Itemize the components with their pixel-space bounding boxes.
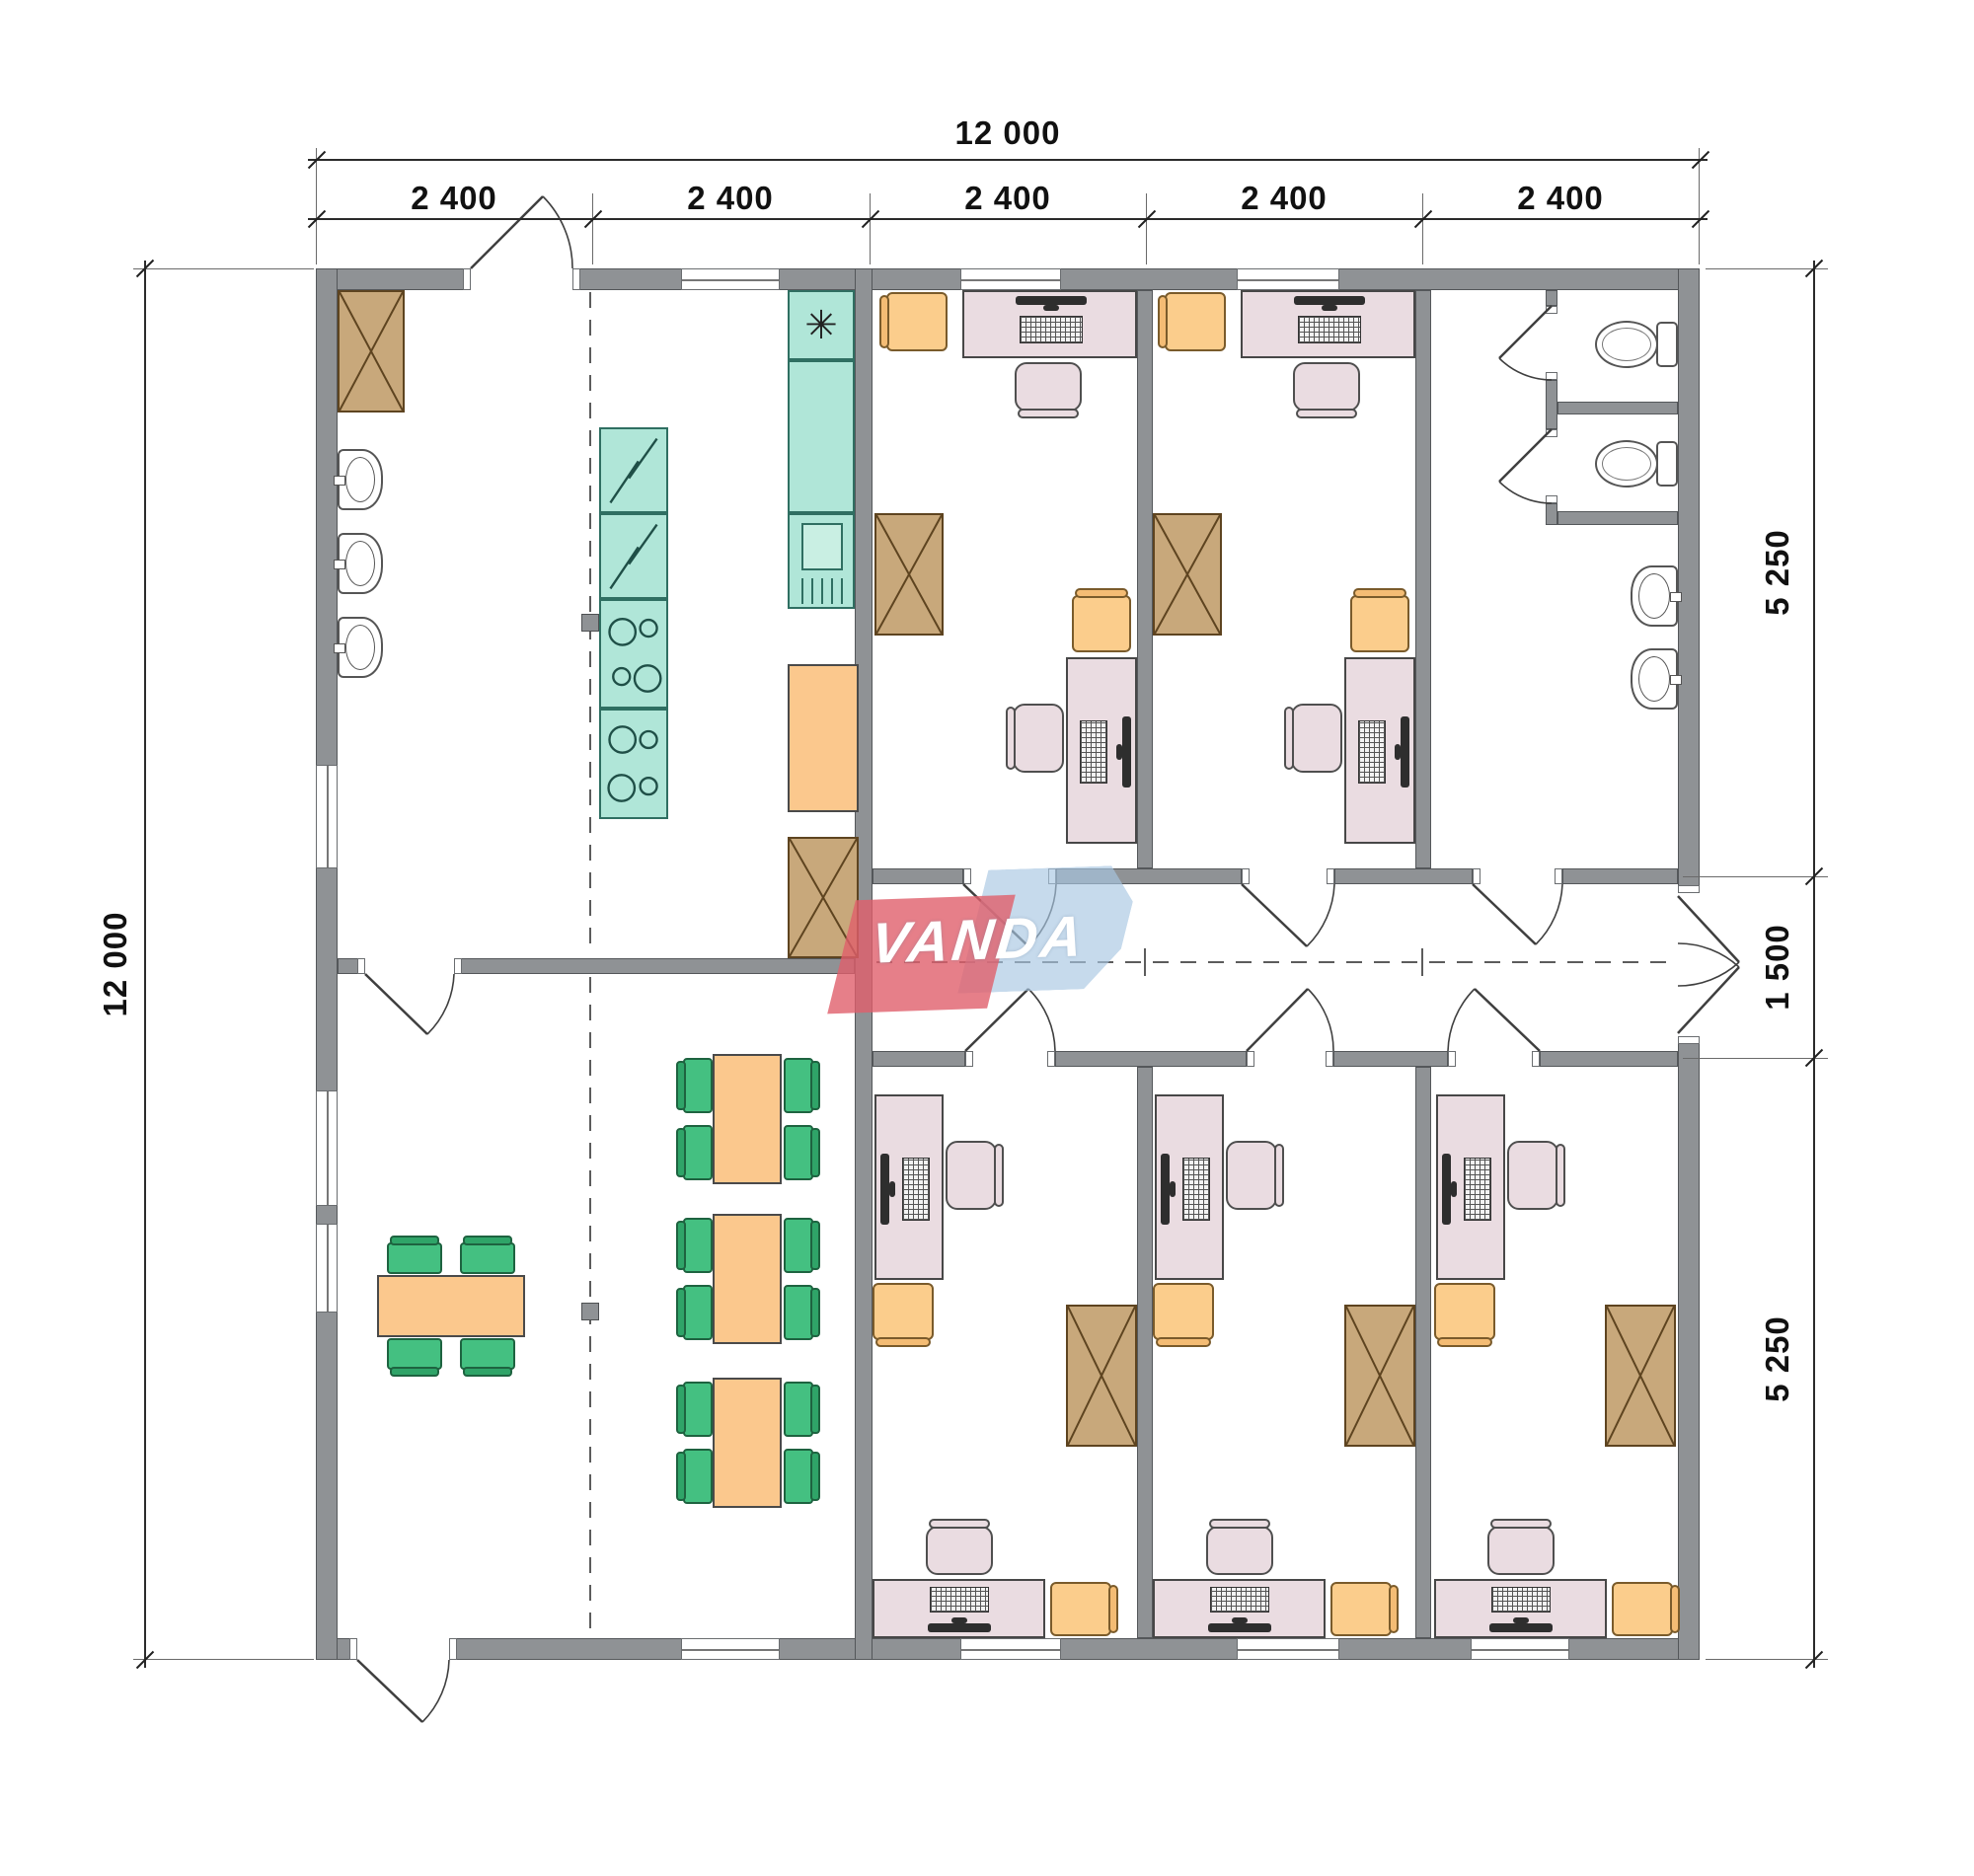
wall-wc-stall xyxy=(1546,290,1557,306)
office-door xyxy=(1242,884,1334,949)
extension-line xyxy=(1706,1659,1828,1660)
stove-icon xyxy=(599,709,668,819)
monitor-icon xyxy=(1489,1623,1553,1632)
dining-chair xyxy=(683,1218,713,1273)
extension-line xyxy=(316,148,317,264)
window xyxy=(316,765,338,868)
office-cabinet xyxy=(1153,513,1222,636)
freezer-segment: ✳ xyxy=(788,290,855,360)
office-chair xyxy=(1291,704,1342,773)
keyboard-icon xyxy=(1080,720,1107,784)
wall-divider xyxy=(454,958,855,974)
office-chair xyxy=(926,1526,993,1575)
washroom-door xyxy=(1473,884,1562,947)
visitor-chair xyxy=(1434,1283,1495,1340)
dining-chair xyxy=(784,1058,813,1113)
dining-chair xyxy=(784,1382,813,1437)
wall-wc-stall xyxy=(1546,503,1557,525)
wall-right xyxy=(1678,1036,1700,1660)
dining-table xyxy=(377,1275,525,1337)
office-chair xyxy=(1013,704,1064,773)
office-chair xyxy=(1226,1141,1277,1210)
door-jamb xyxy=(1326,1051,1333,1067)
dining-chair xyxy=(683,1449,713,1504)
visitor-chair xyxy=(1153,1283,1214,1340)
monitor-stand-icon xyxy=(1451,1181,1457,1197)
monitor-stand-icon xyxy=(1170,1181,1176,1197)
keyboard-icon xyxy=(902,1158,930,1221)
dimension-label: 2 400 xyxy=(939,180,1077,215)
door-jamb xyxy=(1047,1051,1055,1067)
kitchen-sink-basin xyxy=(801,523,843,570)
extension-line xyxy=(1422,193,1423,264)
kitchen-sink-segment xyxy=(788,513,855,609)
column xyxy=(581,1303,599,1320)
door-jamb xyxy=(357,958,365,974)
wall-corridor-top xyxy=(1334,868,1473,884)
kitchen-sink-drainer xyxy=(801,578,845,604)
dining-table xyxy=(713,1378,782,1508)
office-desk xyxy=(1434,1579,1607,1638)
door-jamb xyxy=(1247,1051,1254,1067)
fridge-icon xyxy=(599,427,668,513)
extension-line xyxy=(1683,1058,1828,1059)
office-chair xyxy=(1206,1526,1273,1575)
wall-corridor-top xyxy=(1562,868,1678,884)
wall-office-bottom xyxy=(1415,1067,1431,1638)
door-jamb xyxy=(1448,1051,1456,1067)
office-desk xyxy=(1066,657,1137,844)
dimension-label: 2 400 xyxy=(1215,180,1353,215)
wall-wc-stall xyxy=(1546,380,1557,429)
window xyxy=(681,1638,780,1660)
exit-door xyxy=(357,1660,449,1725)
wall-wc-divider xyxy=(1557,402,1678,414)
centerline-tick xyxy=(1421,948,1423,976)
office-desk xyxy=(1436,1094,1505,1280)
logo-text: VANDA xyxy=(819,861,1136,1017)
wall-sink xyxy=(338,449,383,510)
toilet-tank xyxy=(1656,441,1678,487)
monitor-icon xyxy=(1016,296,1087,305)
monitor-stand-icon xyxy=(889,1181,895,1197)
window xyxy=(1237,1638,1339,1660)
kitchen-unit-left xyxy=(599,427,668,819)
dining-chair xyxy=(683,1058,713,1113)
office-desk xyxy=(962,290,1137,358)
floor-plan-sheet: ✳ xyxy=(0,0,1974,1876)
dining-chair xyxy=(387,1242,442,1274)
monitor-icon xyxy=(1442,1154,1451,1225)
monitor-stand-icon xyxy=(951,1617,967,1623)
window xyxy=(960,1638,1061,1660)
corridor-double-door xyxy=(1678,893,1745,1036)
wall-right xyxy=(1678,268,1700,893)
door-jamb xyxy=(349,1638,357,1660)
office-cabinet xyxy=(1605,1305,1676,1447)
keyboard-icon xyxy=(1298,316,1361,343)
keyboard-icon xyxy=(1182,1158,1210,1221)
visitor-chair xyxy=(1050,1582,1111,1636)
dining-chair xyxy=(683,1125,713,1180)
wall-sink xyxy=(1631,648,1678,710)
dining-table xyxy=(713,1214,782,1344)
dimension-label: 2 400 xyxy=(1491,180,1630,215)
visitor-chair xyxy=(1612,1582,1673,1636)
toilet-bowl xyxy=(1595,440,1658,488)
visitor-chair xyxy=(1165,292,1226,351)
office-cabinet xyxy=(1344,1305,1415,1447)
door-jamb xyxy=(1678,885,1700,893)
dining-chair xyxy=(784,1449,813,1504)
dimension-label: 5 250 xyxy=(1759,1280,1798,1438)
dimension-label: 12 000 xyxy=(97,875,136,1053)
window xyxy=(960,268,1061,290)
toilet-bowl xyxy=(1595,321,1658,368)
toilet-tank xyxy=(1656,322,1678,367)
extension-line xyxy=(1699,148,1700,264)
kitchen-counter-table xyxy=(788,664,859,812)
window xyxy=(316,1224,338,1313)
wall-corridor-bottom xyxy=(1055,1051,1247,1067)
window xyxy=(1237,268,1339,290)
monitor-icon xyxy=(1294,296,1365,305)
dining-chair xyxy=(784,1218,813,1273)
door-jamb xyxy=(463,268,471,290)
office-chair xyxy=(1293,362,1360,412)
dimension-line xyxy=(1813,261,1815,1668)
dining-chair xyxy=(460,1338,515,1370)
dining-chair xyxy=(784,1285,813,1340)
door-jamb xyxy=(1327,868,1334,884)
wall-sink xyxy=(338,617,383,678)
visitor-chair xyxy=(1330,1582,1392,1636)
wc-stall-door xyxy=(1485,306,1552,380)
office-door xyxy=(1448,986,1540,1051)
keyboard-icon xyxy=(1020,316,1083,343)
wall-sink xyxy=(338,533,383,594)
fridge-icon xyxy=(599,513,668,599)
stove-icon xyxy=(599,599,668,709)
monitor-icon xyxy=(928,1623,991,1632)
wall-sink xyxy=(1631,565,1678,627)
office-desk xyxy=(873,1579,1045,1638)
office-chair xyxy=(946,1141,997,1210)
dimension-line-segments xyxy=(308,218,1708,220)
monitor-stand-icon xyxy=(1232,1617,1248,1623)
door-jamb xyxy=(1532,1051,1540,1067)
door-jamb xyxy=(454,958,462,974)
dimension-label: 12 000 xyxy=(919,114,1097,154)
dining-table xyxy=(713,1054,782,1184)
wall-office-bottom xyxy=(1137,1067,1153,1638)
monitor-icon xyxy=(1122,716,1131,788)
door-jamb xyxy=(1242,868,1250,884)
dining-chair xyxy=(784,1125,813,1180)
keyboard-icon xyxy=(1464,1158,1491,1221)
office-desk xyxy=(1155,1094,1224,1280)
wall-wc-bottom xyxy=(1557,511,1678,525)
door-jamb xyxy=(572,268,580,290)
window xyxy=(1471,1638,1569,1660)
office-cabinet xyxy=(1066,1305,1137,1447)
wall-top xyxy=(316,268,471,290)
door-jamb xyxy=(1678,1036,1700,1044)
monitor-stand-icon xyxy=(1116,744,1122,760)
office-chair xyxy=(1487,1526,1555,1575)
extension-line xyxy=(1683,876,1828,877)
keyboard-icon xyxy=(1210,1587,1269,1613)
office-desk xyxy=(874,1094,944,1280)
extension-line xyxy=(133,1659,314,1660)
visitor-chair xyxy=(1072,595,1131,652)
dimension-label: 2 400 xyxy=(385,180,523,215)
dining-chair xyxy=(683,1382,713,1437)
column xyxy=(581,614,599,632)
dining-chair xyxy=(460,1242,515,1274)
office-chair xyxy=(1015,362,1082,412)
wardrobe-cabinet xyxy=(338,290,405,413)
door-jamb xyxy=(1473,868,1480,884)
freezer-star-icon: ✳ xyxy=(790,306,853,345)
monitor-icon xyxy=(1208,1623,1271,1632)
keyboard-icon xyxy=(1491,1587,1551,1613)
wall-office-top xyxy=(1137,290,1153,868)
monitor-icon xyxy=(1401,716,1409,788)
extension-line xyxy=(133,268,314,269)
office-desk xyxy=(1344,657,1415,844)
counter-segment xyxy=(788,360,855,513)
monitor-stand-icon xyxy=(1513,1617,1529,1623)
dining-door xyxy=(365,974,454,1037)
office-desk xyxy=(1241,290,1415,358)
vanda-watermark-logo: VANDA xyxy=(825,862,1132,1018)
visitor-chair xyxy=(886,292,948,351)
wall-corridor-bottom xyxy=(873,1051,965,1067)
dimension-label: 2 400 xyxy=(661,180,799,215)
monitor-icon xyxy=(1161,1154,1170,1225)
dining-chair xyxy=(387,1338,442,1370)
wall-corridor-bottom xyxy=(1540,1051,1678,1067)
window xyxy=(681,268,780,290)
extension-line xyxy=(592,193,593,264)
wall-office-top xyxy=(1415,290,1431,868)
extension-line xyxy=(1706,268,1828,269)
wc-stall-door xyxy=(1485,429,1552,503)
dining-chair xyxy=(683,1285,713,1340)
extension-line xyxy=(1146,193,1147,264)
visitor-chair xyxy=(1350,595,1409,652)
visitor-chair xyxy=(873,1283,934,1340)
monitor-stand-icon xyxy=(1043,305,1059,311)
dimension-label: 5 250 xyxy=(1759,493,1798,651)
centerline-tick xyxy=(1144,948,1146,976)
extension-line xyxy=(870,193,871,264)
window xyxy=(316,1090,338,1206)
dimension-label: 1 500 xyxy=(1759,888,1798,1046)
keyboard-icon xyxy=(1358,720,1386,784)
monitor-stand-icon xyxy=(1322,305,1337,311)
monitor-icon xyxy=(880,1154,889,1225)
door-jamb xyxy=(1555,868,1562,884)
office-chair xyxy=(1507,1141,1558,1210)
door-jamb xyxy=(449,1638,457,1660)
office-cabinet xyxy=(874,513,944,636)
wall-corridor-bottom xyxy=(1333,1051,1448,1067)
dimension-line-overall xyxy=(308,159,1708,161)
keyboard-icon xyxy=(930,1587,989,1613)
office-desk xyxy=(1153,1579,1326,1638)
monitor-stand-icon xyxy=(1395,744,1401,760)
kitchen-unit-right: ✳ xyxy=(788,290,855,609)
office-door xyxy=(1247,986,1333,1051)
door-jamb xyxy=(965,1051,973,1067)
dimension-line xyxy=(144,261,146,1668)
